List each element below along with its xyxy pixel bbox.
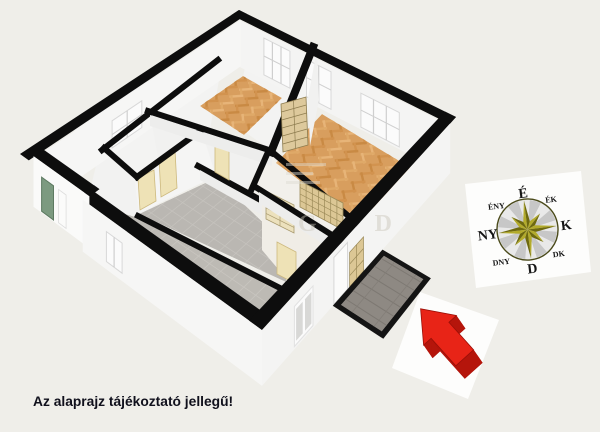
svg-text:D: D bbox=[526, 262, 538, 278]
svg-text:ÉK: ÉK bbox=[545, 193, 558, 204]
svg-text:G D: G D bbox=[298, 211, 418, 237]
svg-text:DK: DK bbox=[552, 249, 566, 259]
svg-text:ÉNY: ÉNY bbox=[487, 200, 505, 212]
svg-text:K: K bbox=[560, 218, 573, 234]
svg-text:Az alaprajz tájékoztató jelleg: Az alaprajz tájékoztató jellegű! bbox=[33, 394, 233, 409]
svg-text:NY: NY bbox=[477, 227, 499, 244]
